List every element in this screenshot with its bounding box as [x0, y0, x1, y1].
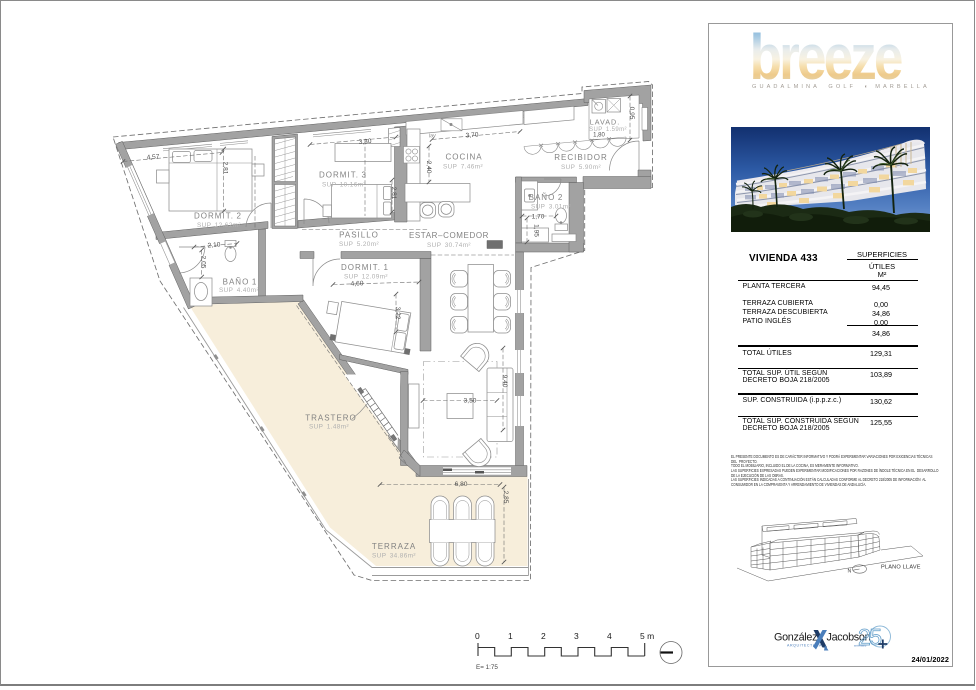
svg-text:SUP 30.74m²: SUP 30.74m²: [427, 242, 471, 249]
svg-text:ESTAR–COMEDOR: ESTAR–COMEDOR: [409, 231, 489, 240]
svg-text:BAÑO 1: BAÑO 1: [223, 278, 258, 287]
svg-text:3,50: 3,50: [464, 398, 477, 405]
svg-text:2,85: 2,85: [502, 491, 509, 504]
svg-text:2,81: 2,81: [390, 187, 397, 200]
svg-text:LAVAD.: LAVAD.: [590, 118, 621, 127]
svg-text:SUP 3.01m²: SUP 3.01m²: [531, 204, 571, 211]
svg-text:2,05: 2,05: [200, 256, 207, 269]
svg-text:SUP 12.09m²: SUP 12.09m²: [344, 274, 388, 281]
svg-text:3,30: 3,30: [358, 138, 372, 146]
svg-text:1,80: 1,80: [593, 133, 605, 139]
svg-text:2,81: 2,81: [222, 162, 229, 175]
svg-text:2,10: 2,10: [207, 242, 221, 250]
svg-text:TRASTERO: TRASTERO: [305, 414, 357, 423]
svg-text:4,57: 4,57: [146, 153, 160, 161]
svg-text:3,70: 3,70: [465, 131, 479, 139]
svg-text:SUP 10.16m²: SUP 10.16m²: [322, 182, 366, 189]
svg-text:PASILLO: PASILLO: [339, 231, 379, 240]
svg-text:1,70: 1,70: [532, 214, 545, 221]
svg-text:COCINA: COCINA: [445, 153, 482, 162]
svg-text:SUP 4.40m²: SUP 4.40m²: [219, 287, 259, 294]
svg-text:SUP 1.48m²: SUP 1.48m²: [309, 424, 349, 431]
svg-text:SUP 5.20m²: SUP 5.20m²: [339, 241, 379, 248]
svg-text:SUP 12.62m²: SUP 12.62m²: [197, 222, 241, 229]
svg-text:0,95: 0,95: [628, 107, 635, 120]
svg-text:BAÑO 2: BAÑO 2: [529, 193, 564, 202]
svg-text:DORMIT. 2: DORMIT. 2: [194, 212, 242, 221]
svg-text:9,40: 9,40: [501, 375, 508, 388]
svg-text:6,80: 6,80: [455, 481, 468, 488]
svg-text:RECIBIDOR: RECIBIDOR: [554, 153, 607, 162]
svg-text:4,60: 4,60: [350, 280, 363, 287]
svg-text:2,40: 2,40: [425, 161, 432, 174]
svg-text:DORMIT. 3: DORMIT. 3: [319, 171, 367, 180]
svg-text:SUP 5.90m²: SUP 5.90m²: [561, 164, 601, 171]
svg-text:DORMIT. 1: DORMIT. 1: [341, 263, 389, 272]
svg-text:3,22: 3,22: [394, 307, 401, 320]
svg-text:SUP 7.46m²: SUP 7.46m²: [443, 164, 483, 171]
svg-text:1,95: 1,95: [533, 224, 540, 237]
svg-text:TERRAZA: TERRAZA: [372, 542, 416, 551]
svg-text:SUP 34.86m²: SUP 34.86m²: [372, 553, 416, 560]
